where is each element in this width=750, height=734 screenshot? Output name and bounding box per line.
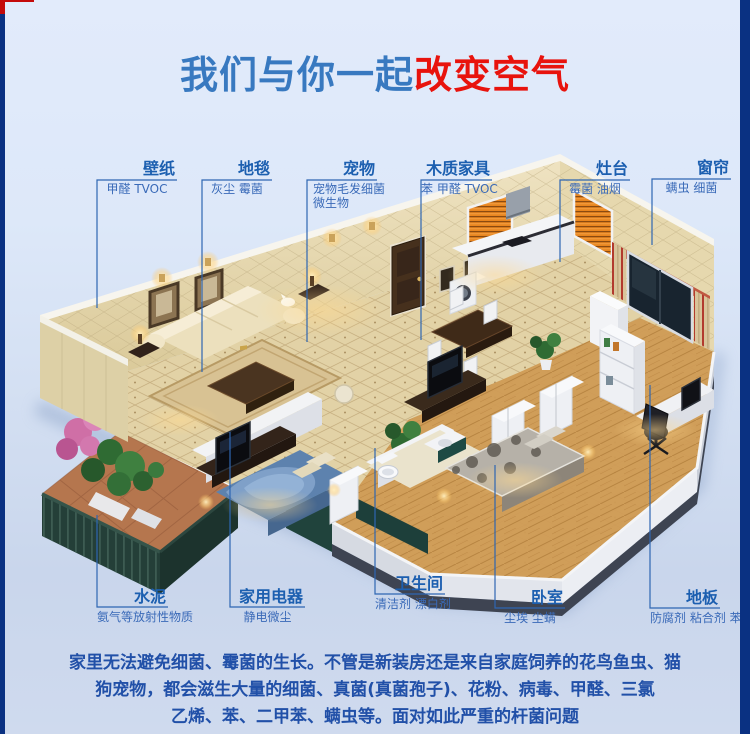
- paragraph-line-1: 家里无法避免细菌、霉菌的生长。不管是新装房还是来自家庭饲养的花鸟鱼虫、猫: [0, 650, 750, 677]
- curtain-right: [694, 290, 710, 350]
- left-border: [0, 0, 5, 734]
- label-wallpaper-sub: 甲醛 TVOC: [97, 182, 177, 196]
- label-carpet-title: 地毯: [202, 160, 272, 178]
- label-appliances-title: 家用电器: [230, 588, 305, 606]
- label-bedroom-title: 卧室: [495, 589, 565, 607]
- label-wallpaper-title: 壁纸: [97, 160, 177, 178]
- left-border-red-accent: [0, 0, 5, 14]
- label-pets: 宠物 宠物毛发细菌 微生物: [307, 160, 377, 210]
- label-floor: 地板 防腐剂 粘合剂 苯 甲醛: [650, 589, 720, 625]
- label-carpet: 地毯 灰尘 霉菌: [202, 160, 272, 196]
- label-stove: 灶台 霉菌 油烟: [560, 160, 630, 196]
- paragraph-line-3: 乙烯、苯、二甲苯、螨虫等。面对如此严重的杆菌问题: [0, 704, 750, 731]
- label-bathroom-title: 卫生间: [375, 575, 445, 593]
- label-pets-title: 宠物: [307, 160, 377, 178]
- page-title: 我们与你一起改变空气: [0, 44, 750, 99]
- label-carpet-sub: 灰尘 霉菌: [202, 182, 272, 196]
- label-bathroom-sub: 清洁剂 漂白剂: [375, 597, 445, 611]
- page-title-red: 改变空气: [414, 53, 570, 97]
- label-curtain: 窗帘 螨虫 细菌: [652, 159, 731, 195]
- label-stove-sub: 霉菌 油烟: [560, 182, 630, 196]
- label-appliances-sub: 静电微尘: [230, 610, 305, 624]
- label-cement: 水泥 氨气等放射性物质: [97, 588, 168, 624]
- label-wood-furniture-title: 木质家具: [421, 160, 492, 178]
- label-floor-title: 地板: [650, 589, 720, 607]
- label-cement-sub: 氨气等放射性物质: [97, 610, 168, 624]
- round-side-table: [335, 385, 353, 403]
- description-paragraph: 家里无法避免细菌、霉菌的生长。不管是新装房还是来自家庭饲养的花鸟鱼虫、猫 狗宠物…: [0, 650, 750, 731]
- label-floor-sub: 防腐剂 粘合剂 苯 甲醛: [650, 611, 724, 625]
- label-stove-title: 灶台: [560, 160, 630, 178]
- label-cement-title: 水泥: [97, 588, 168, 606]
- label-wood-furniture: 木质家具 苯 甲醛 TVOC: [421, 160, 492, 196]
- label-wallpaper: 壁纸 甲醛 TVOC: [97, 160, 177, 196]
- page-title-blue: 我们与你一起: [180, 53, 414, 97]
- label-bathroom: 卫生间 清洁剂 漂白剂: [375, 575, 445, 611]
- curtain-left: [612, 242, 626, 302]
- right-border: [740, 0, 750, 734]
- label-curtain-title: 窗帘: [652, 159, 731, 177]
- label-curtain-sub: 螨虫 细菌: [652, 181, 731, 195]
- label-bedroom: 卧室 尘埃 尘螨: [495, 589, 565, 625]
- label-pets-sub2: 微生物: [307, 196, 377, 210]
- label-wood-furniture-sub: 苯 甲醛 TVOC: [421, 182, 492, 196]
- label-pets-sub: 宠物毛发细菌: [307, 182, 377, 196]
- label-bedroom-sub: 尘埃 尘螨: [495, 611, 565, 625]
- top-border-red-accent: [0, 0, 34, 2]
- paragraph-line-2: 狗宠物，都会滋生大量的细菌、真菌(真菌孢子)、花粉、病毒、甲醛、三氯: [0, 677, 750, 704]
- label-appliances: 家用电器 静电微尘: [230, 588, 305, 624]
